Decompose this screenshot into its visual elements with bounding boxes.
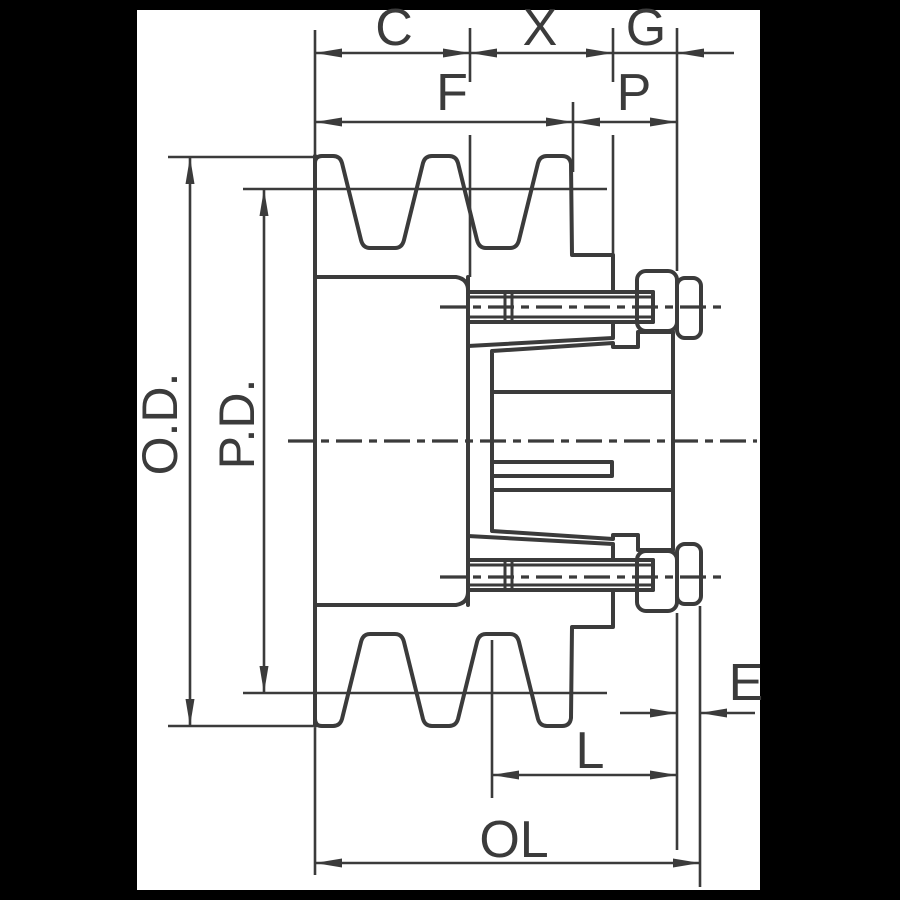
pulley-cross-section-drawing: C X G F P O.D. P.D. E L OL: [0, 0, 900, 900]
dim-label-pd: P.D.: [209, 379, 265, 470]
dim-label-od: O.D.: [132, 373, 188, 476]
dim-label-p: P: [617, 64, 652, 122]
dim-label-e: E: [729, 654, 764, 712]
dim-label-f: F: [436, 64, 468, 122]
dim-label-x: X: [523, 0, 558, 57]
dim-label-ol: OL: [479, 811, 548, 869]
dim-label-g: G: [626, 0, 666, 57]
dim-label-l: L: [576, 722, 605, 780]
dim-label-c: C: [375, 0, 413, 57]
drawing-canvas: C X G F P O.D. P.D. E L OL: [0, 0, 900, 900]
